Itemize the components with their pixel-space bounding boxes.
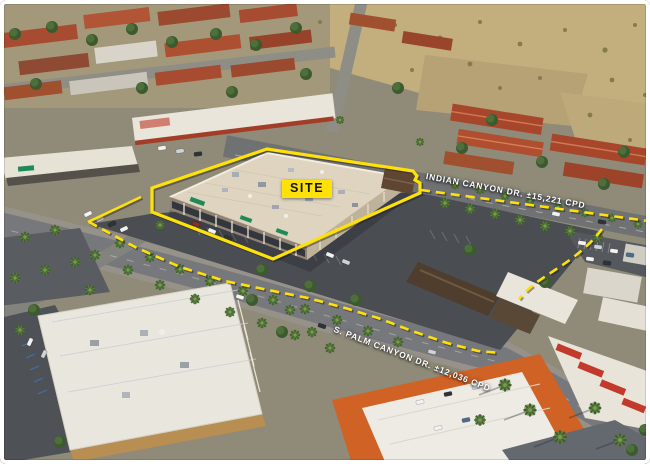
aerial-marketing-photo: SITE INDIAN CANYON DR. ±15,221 CPD S. PA… (0, 0, 650, 464)
aerial-scene (0, 0, 650, 464)
site-label: SITE (282, 180, 332, 198)
